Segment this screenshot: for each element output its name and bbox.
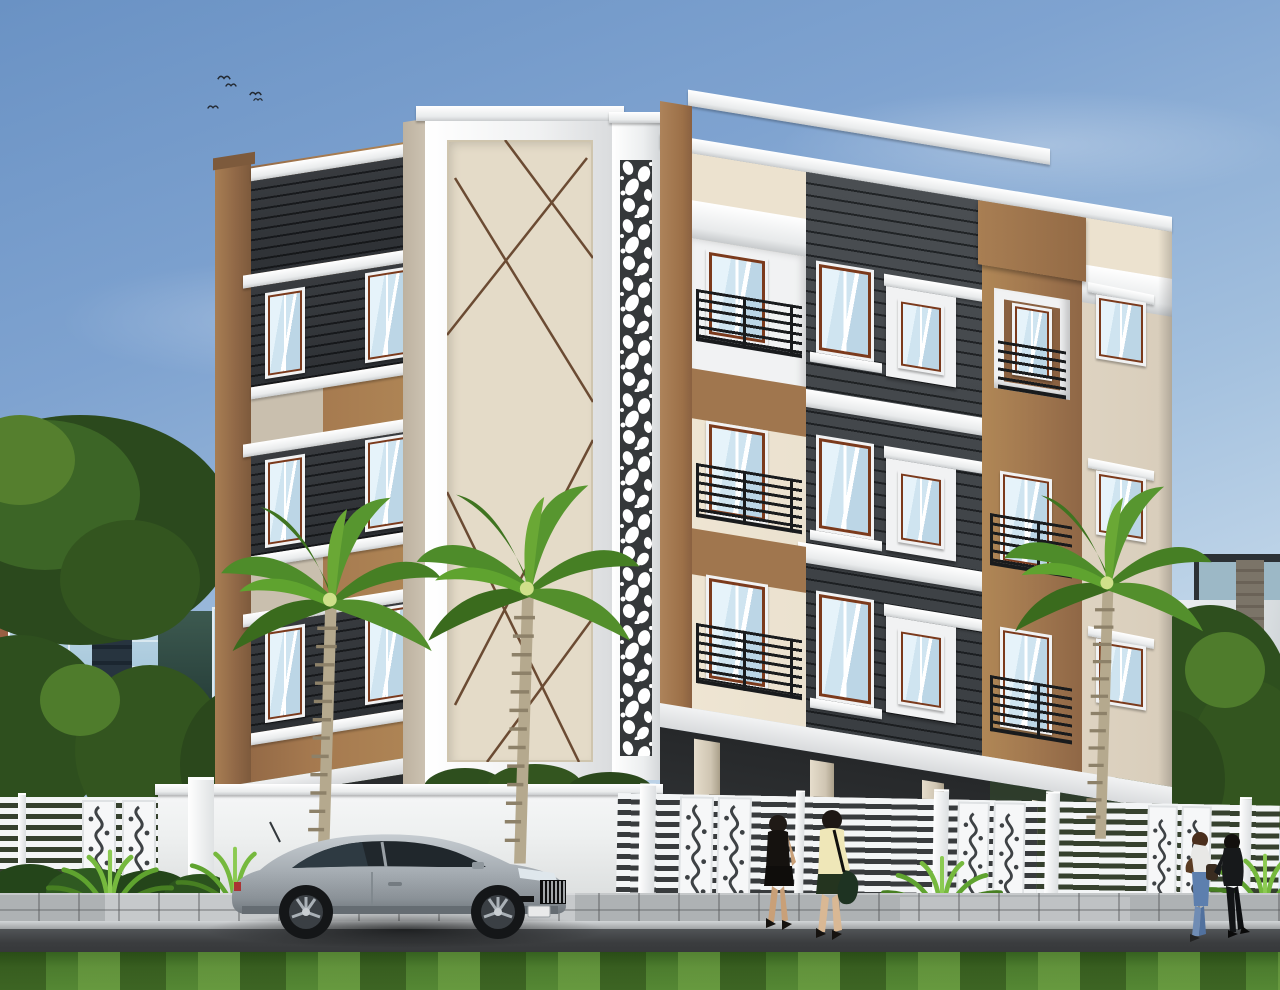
scene — [0, 0, 1280, 990]
front-wheel — [471, 885, 525, 939]
mirror — [472, 862, 484, 869]
pedestrians-talking — [1170, 828, 1280, 948]
antenna — [270, 822, 280, 842]
silver-coupe — [222, 812, 574, 944]
person-white-top — [1186, 832, 1218, 942]
lawn — [0, 952, 1280, 990]
door-handle — [388, 882, 402, 886]
palm-tree — [1000, 438, 1216, 868]
curb — [0, 921, 1280, 929]
sidewalk — [0, 893, 1280, 929]
person-black-outfit — [1214, 834, 1250, 938]
pedestrians-walking — [748, 806, 888, 950]
license-plate — [528, 906, 550, 917]
woman-black-dress — [764, 815, 796, 930]
taillight — [234, 882, 241, 891]
rear-wheel — [279, 885, 333, 939]
woman-yellow-top — [816, 810, 858, 940]
